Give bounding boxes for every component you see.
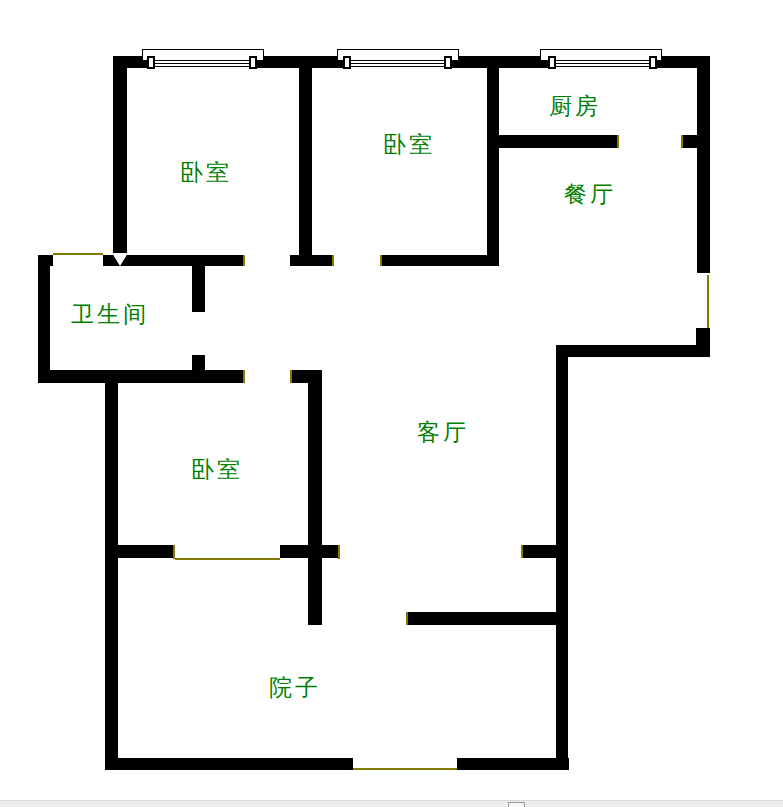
opening-marker [617, 135, 619, 148]
window-glass-line [548, 63, 657, 64]
wall-segment [113, 56, 127, 255]
wall-segment [257, 56, 343, 68]
window-jamb [249, 56, 257, 69]
wall-segment [105, 758, 353, 770]
opening-marker [406, 612, 408, 625]
floor-plan: 卧室 卧室 厨房 餐厅 卫生间 客厅 卧室 院子 [0, 0, 783, 800]
window-glass-line [343, 63, 452, 64]
opening-marker [243, 370, 245, 383]
room-label-bedroom-lower-left: 卧室 [191, 458, 243, 481]
window-jamb [444, 56, 452, 69]
wall-segment [408, 612, 556, 625]
window-glass-line [147, 63, 257, 64]
wall-segment [683, 135, 697, 148]
window-jamb [147, 56, 155, 69]
wall-segment [38, 255, 53, 266]
wall-segment [292, 370, 322, 383]
opening-marker [173, 545, 175, 559]
room-label-bedroom-top-middle: 卧室 [383, 133, 435, 156]
wall-segment [457, 758, 569, 770]
wall-segment [192, 355, 205, 370]
wall-segment [105, 382, 118, 770]
opening-marker [53, 253, 103, 255]
opening-marker [175, 558, 280, 560]
window-glass-line [343, 60, 452, 61]
opening-marker [521, 545, 523, 558]
opening-marker [380, 255, 382, 266]
wall-segment [499, 135, 617, 148]
wall-segment [299, 68, 312, 255]
window-jamb [548, 56, 556, 69]
room-label-yard: 院子 [269, 676, 321, 699]
window-jamb [343, 56, 351, 69]
room-label-bathroom: 卫生间 [71, 303, 149, 326]
wall-segment [487, 68, 499, 266]
wall-segment [556, 345, 568, 770]
scrollbar-thumb[interactable] [508, 802, 525, 807]
wall-segment [118, 545, 173, 558]
wall-segment [452, 56, 548, 68]
opening-marker [332, 255, 334, 266]
room-label-bedroom-top-left: 卧室 [180, 161, 232, 184]
wall-segment [380, 255, 497, 266]
wall-segment [523, 545, 556, 558]
door-swing-marker [112, 253, 128, 266]
wall-segment [556, 345, 710, 357]
wall-segment [280, 545, 338, 558]
wall-segment [38, 370, 245, 383]
wall-segment [38, 255, 50, 383]
wall-segment [290, 255, 332, 266]
wall-segment [697, 56, 710, 273]
window-glass-line [548, 60, 657, 61]
room-label-kitchen: 厨房 [549, 95, 601, 118]
window-jamb [649, 56, 657, 69]
room-label-living: 客厅 [417, 421, 469, 444]
opening-marker [290, 370, 292, 383]
window-glass-line [343, 66, 452, 67]
window-glass-line [147, 66, 257, 67]
opening-marker [681, 135, 683, 148]
wall-segment [308, 383, 322, 625]
window-glass-line [147, 60, 257, 61]
opening-marker [243, 255, 245, 266]
opening-marker [353, 768, 457, 770]
wall-segment [192, 266, 205, 312]
opening-marker [338, 545, 340, 559]
window-glass-line [548, 66, 657, 67]
opening-marker [707, 275, 709, 328]
horizontal-scrollbar[interactable] [0, 800, 783, 807]
room-label-dining: 餐厅 [564, 183, 616, 206]
floor-plan-page: 卧室 卧室 厨房 餐厅 卫生间 客厅 卧室 院子 [0, 0, 783, 807]
